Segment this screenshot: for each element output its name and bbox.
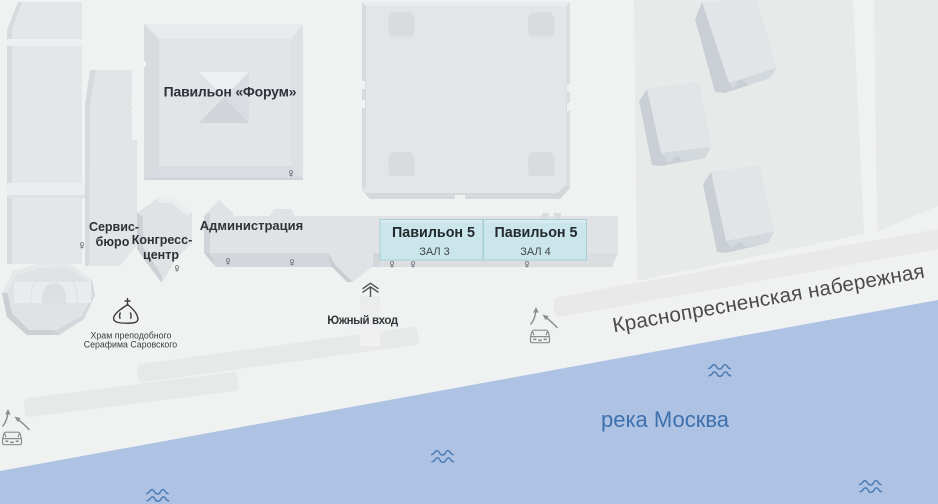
svg-text:река Москва: река Москва bbox=[601, 407, 730, 432]
svg-text:ЗАЛ 4: ЗАЛ 4 bbox=[520, 246, 551, 258]
svg-text:Павильон 5: Павильон 5 bbox=[392, 225, 475, 241]
svg-text:Павильон «Форум»: Павильон «Форум» bbox=[164, 84, 297, 100]
svg-text:Павильон 5: Павильон 5 bbox=[495, 225, 578, 241]
svg-text:Серафима Саровского: Серафима Саровского bbox=[84, 340, 178, 350]
svg-text:бюро: бюро bbox=[96, 235, 130, 249]
svg-text:Конгресс-: Конгресс- bbox=[132, 233, 193, 247]
svg-text:Сервис-: Сервис- bbox=[89, 220, 139, 234]
svg-text:центр: центр bbox=[143, 248, 179, 262]
svg-text:Администрация: Администрация bbox=[200, 218, 303, 233]
svg-text:Южный вход: Южный вход bbox=[327, 315, 399, 327]
svg-text:ЗАЛ 3: ЗАЛ 3 bbox=[419, 246, 450, 258]
